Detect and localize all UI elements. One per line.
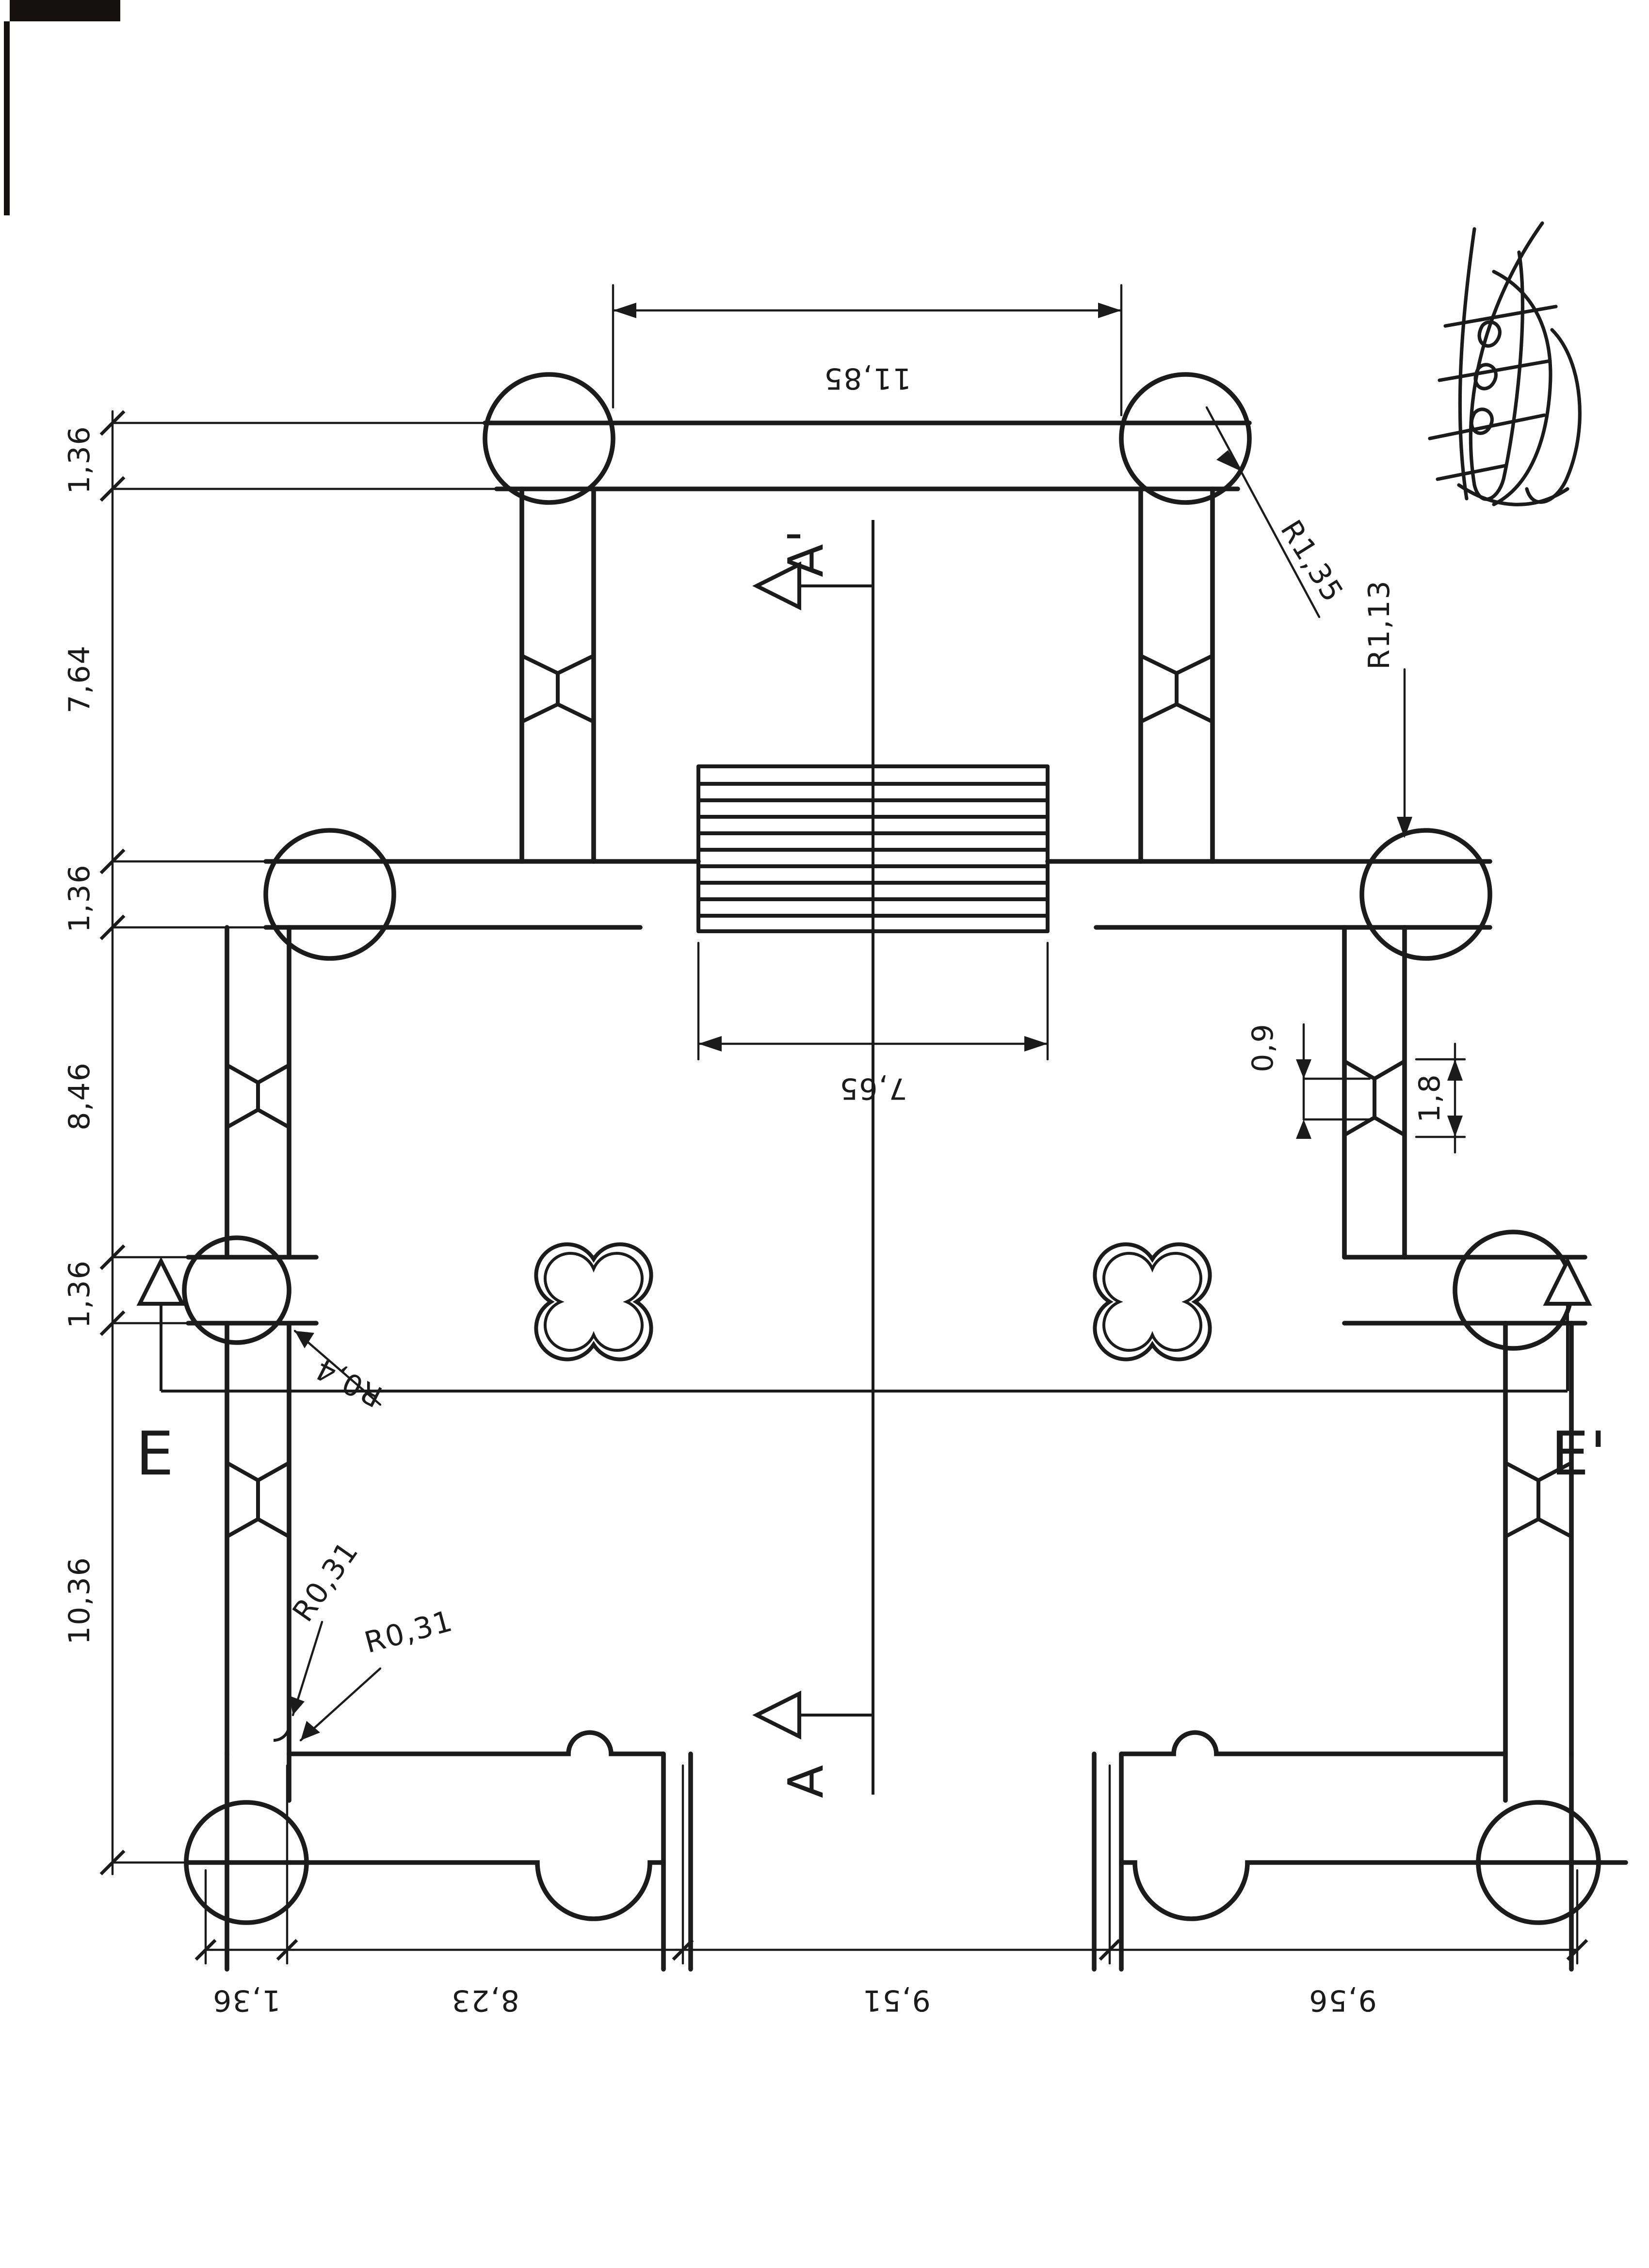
chapel-right-bottom-wall: [1121, 1863, 1626, 1919]
dim-arrow: [1296, 1059, 1311, 1079]
dimension-top: 11,85: [613, 285, 1121, 415]
dim-arrow: [613, 303, 636, 318]
dim-arrow: [1447, 1059, 1463, 1081]
radius-label-r031b: R0,31: [361, 1604, 456, 1660]
dim-extension-lines: [613, 285, 1121, 415]
signature-scribble: [1430, 223, 1580, 504]
chapel-left-bottom-wall: [188, 1863, 663, 1919]
scan-artifact-line: [4, 21, 10, 215]
chapel-left-top-wall: [289, 1733, 663, 1754]
dim-extension-lines: [1304, 1079, 1370, 1119]
section-a: A' A: [757, 520, 873, 1798]
dimension-joint-waist: 0,9: [1246, 1023, 1370, 1139]
chapel-right: [1094, 1733, 1626, 1969]
row-c-right-band: [1344, 1257, 1585, 1323]
dim-arrow: [698, 1036, 722, 1052]
dimension-joint-height: 1,8: [1413, 1044, 1465, 1152]
dimension-left-chain: 1,36 7,64 1,36 8,46 1,36 10,36: [63, 411, 497, 1874]
nave-west-wall-pair: [227, 1323, 289, 1754]
dim-label: 10,36: [63, 1556, 97, 1645]
leader-arrow: [1216, 450, 1242, 471]
leader-arrow: [301, 1721, 320, 1740]
section-e-right-arrowhead: [1546, 1261, 1589, 1304]
column-top-left: [485, 374, 613, 502]
dim-arrow: [1447, 1116, 1463, 1137]
leader-line: [1207, 407, 1319, 617]
east-wall-joint: [1141, 656, 1212, 722]
row-c-left-band: [188, 1257, 316, 1323]
dim-label: 9,51: [862, 1983, 931, 2017]
floor-plan-drawing: 11,85 1,36 7,64 1,36 8,46 1,36 10,36 1,3…: [0, 0, 1649, 2268]
chapel-left-east-wall-pair: [663, 1754, 691, 1969]
signature-stroke: [1471, 223, 1542, 499]
chapel-right-top-wall: [1121, 1733, 1505, 1754]
quatrefoil-pier-right: [1095, 1244, 1210, 1359]
section-e-left-arrowhead: [140, 1261, 182, 1304]
section-a-arrowhead: [757, 1694, 799, 1736]
quatrefoil-inner: [545, 1253, 642, 1350]
dim-arrow: [1098, 303, 1121, 318]
radius-label-r135: R1,35: [1274, 514, 1350, 608]
callout-r031-b: R0,31: [301, 1604, 456, 1740]
dim-label: 1,36: [212, 1983, 281, 2017]
callout-r04: R0,4: [295, 1331, 388, 1413]
dim-label: 8,46: [63, 1062, 97, 1131]
dim-label: 1,36: [63, 864, 97, 933]
nave-east-wall-pair: [1505, 1323, 1571, 1754]
dim-label: 1,36: [63, 1260, 97, 1328]
dim-label: 7,64: [63, 645, 97, 713]
dim-arrow: [1024, 1036, 1048, 1052]
column-row-c-left: [184, 1238, 289, 1343]
section-label-e: E: [136, 1419, 175, 1489]
chapel-left: [188, 1733, 691, 1969]
column-mid-left: [266, 830, 394, 958]
side-walls-upper: [227, 927, 1405, 1257]
scanned-page: 11,85 1,36 7,64 1,36 8,46 1,36 10,36 1,3…: [0, 0, 1649, 2268]
dim-arrow: [1296, 1119, 1311, 1139]
east-side-joint: [1344, 1061, 1405, 1135]
dim-label-joint-height: 1,8: [1413, 1073, 1447, 1122]
radius-label-r113: R1,13: [1362, 580, 1396, 669]
quatrefoil-pier-left: [536, 1244, 651, 1359]
chain-extension-lines: [113, 423, 497, 1863]
dim-label: 9,56: [1308, 1983, 1377, 2017]
west-wall-joint: [522, 656, 594, 722]
callout-r031-a: R0,31: [286, 1535, 366, 1715]
scan-artifact-strip: [0, 0, 120, 21]
chapel-right-west-wall-pair: [1094, 1754, 1121, 1969]
column-top-right: [1121, 374, 1249, 502]
nave-west-joint: [227, 1463, 289, 1537]
radius-label-r04: R0,4: [309, 1351, 388, 1413]
row-c-walls: [188, 1257, 1585, 1323]
dim-label: 8,23: [451, 1983, 519, 2017]
dim-label: 1,36: [63, 425, 97, 494]
dim-label-waist: 0,9: [1246, 1023, 1280, 1072]
dim-label-top: 11,85: [823, 361, 911, 395]
radius-label-r031a: R0,31: [286, 1535, 366, 1628]
section-label-a: A: [777, 1764, 834, 1798]
narthex-walls: [485, 423, 1249, 861]
callout-r113: R1,13: [1362, 580, 1412, 838]
dimension-bottom-chain: 1,36 8,23 9,51 9,56: [196, 1766, 1587, 2017]
callout-r135: R1,35: [1207, 407, 1350, 617]
section-label-e-prime: E': [1551, 1419, 1607, 1489]
section-label-a-prime: A': [777, 529, 834, 577]
west-side-joint: [227, 1065, 289, 1127]
nave-side-walls: [227, 1323, 1571, 1754]
scan-artifact: [0, 0, 120, 215]
column-mid-right: [1362, 830, 1490, 958]
quatrefoil-inner: [1104, 1253, 1201, 1350]
